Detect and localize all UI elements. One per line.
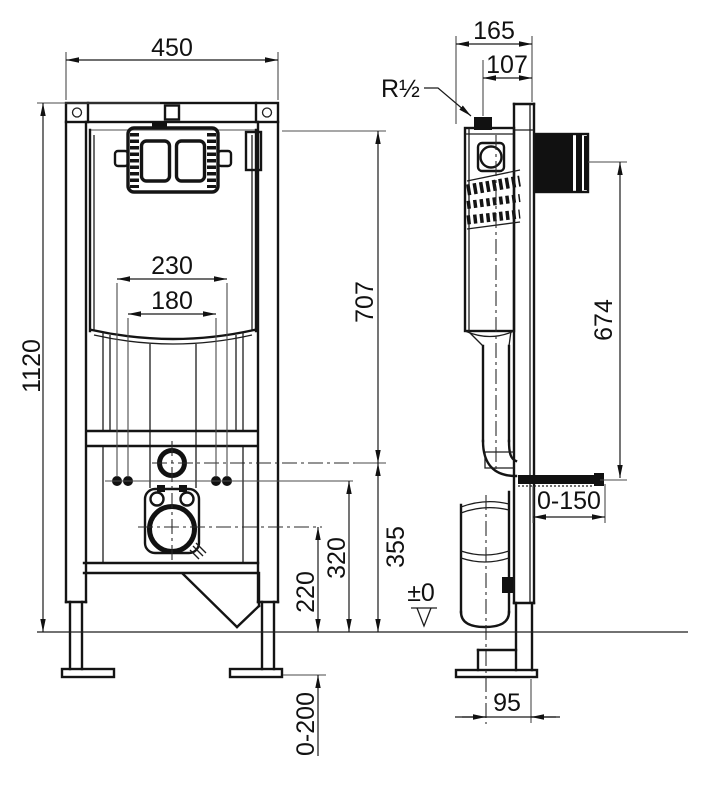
dim-water-connection-offset: 107: [483, 51, 532, 116]
side-centerlines: [486, 135, 496, 724]
cistern-side: [465, 117, 520, 346]
flush-button-small: [177, 141, 205, 181]
dim-rod-adjustment: 0-150: [533, 484, 605, 523]
dim-label-320: 320: [323, 537, 351, 579]
drain-pipe: [461, 492, 513, 627]
foot-plate-side: [456, 670, 537, 677]
dim-label-165: 165: [473, 17, 515, 45]
datum-arrow-icon: [417, 608, 431, 626]
dim-bolt-height: 320: [323, 481, 351, 632]
frame-top-rail: [66, 103, 278, 130]
dim-label-220: 220: [292, 571, 320, 613]
actuator-tab-left: [115, 151, 128, 166]
drain-chute: [183, 573, 259, 627]
actuator-tab-right: [218, 151, 231, 166]
fixing-rod: [518, 473, 604, 486]
dim-label-107: 107: [486, 51, 528, 79]
floor-level-datum: ±0: [407, 579, 437, 626]
water-connection: [474, 117, 492, 130]
dim-outlet-offset: 95: [455, 679, 560, 723]
dim-label-0-200: 0-200: [292, 692, 320, 756]
flush-pipe-side: [483, 346, 516, 476]
dim-outlet-height: 220: [292, 527, 320, 632]
frame-columns: [62, 122, 282, 677]
frame-struts: [103, 332, 243, 563]
flush-button-large: [142, 141, 170, 181]
dim-label-230: 230: [151, 252, 193, 280]
dim-flush-center-height: 707: [282, 131, 386, 463]
corner-hole-right: [263, 108, 272, 117]
dim-label-plus-minus-0: ±0: [407, 579, 435, 607]
dim-label-355: 355: [382, 526, 410, 568]
pipe-clamp: [502, 577, 513, 593]
flush-actuator: [115, 128, 231, 192]
wall-bracket: [535, 134, 588, 192]
dim-label-r-half: R½: [381, 75, 420, 103]
dim-label-674: 674: [590, 299, 618, 341]
water-connection-callout: R½: [381, 75, 471, 116]
dim-label-1120: 1120: [18, 339, 46, 393]
dimension-drawing: 450 1120 230 180 707 355: [0, 0, 710, 793]
dim-frame-width: 450: [66, 34, 278, 100]
drawing-canvas: 450 1120 230 180 707 355: [0, 0, 710, 793]
corner-hole-left: [73, 108, 82, 117]
dim-label-450: 450: [151, 34, 193, 62]
dim-label-180: 180: [151, 287, 193, 315]
dim-foot-adjustment: 0-200: [283, 675, 326, 756]
dim-label-707: 707: [351, 281, 379, 323]
dim-label-95: 95: [493, 689, 521, 717]
dim-label-0-150: 0-150: [537, 487, 601, 515]
dim-wall-bracket-height: 674: [588, 162, 627, 480]
outlet-connector: [145, 485, 206, 559]
side-view: [456, 104, 604, 724]
dim-flush-bend-height: 355: [378, 463, 410, 632]
hanger-tab: [165, 106, 179, 120]
